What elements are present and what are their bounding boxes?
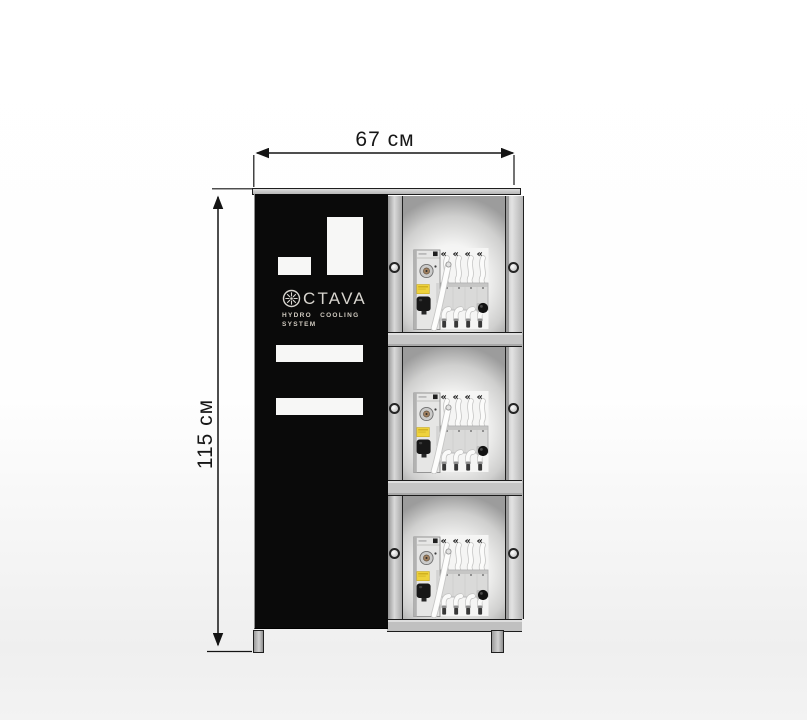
screw-icon	[389, 548, 400, 559]
screw-icon	[508, 262, 519, 273]
width-dimension-label: 67 см	[256, 128, 514, 152]
brand-tagline-line1: HYDRO COOLING	[282, 312, 386, 320]
brand-panel: CTAVA HYDRO COOLING SYSTEM	[254, 194, 388, 629]
dispenser-unit-3	[413, 532, 489, 618]
panel-slot-1	[276, 345, 363, 362]
brand-tagline-line2: SYSTEM	[282, 321, 386, 329]
dispenser-unit-2	[413, 388, 489, 474]
shelf-divider-2	[387, 480, 522, 496]
screw-icon	[389, 403, 400, 414]
height-dimension-label: 115 см	[194, 396, 218, 472]
screw-icon	[508, 548, 519, 559]
product-diagram: «« ««	[0, 0, 807, 720]
panel-window-tall	[327, 217, 363, 275]
shelf-divider-1	[387, 332, 522, 347]
dispenser-unit-1	[413, 245, 489, 331]
cabinet: CTAVA HYDRO COOLING SYSTEM	[252, 188, 522, 654]
cabinet-leg-left	[253, 630, 264, 653]
panel-window-small	[278, 257, 311, 275]
panel-slot-2	[276, 398, 363, 415]
screw-icon	[508, 403, 519, 414]
impeller-ring-icon	[282, 289, 301, 308]
screw-icon	[389, 262, 400, 273]
brand-logo: CTAVA HYDRO COOLING SYSTEM	[282, 289, 386, 329]
brand-wordmark: CTAVA	[303, 289, 367, 308]
cabinet-leg-right	[491, 630, 504, 653]
